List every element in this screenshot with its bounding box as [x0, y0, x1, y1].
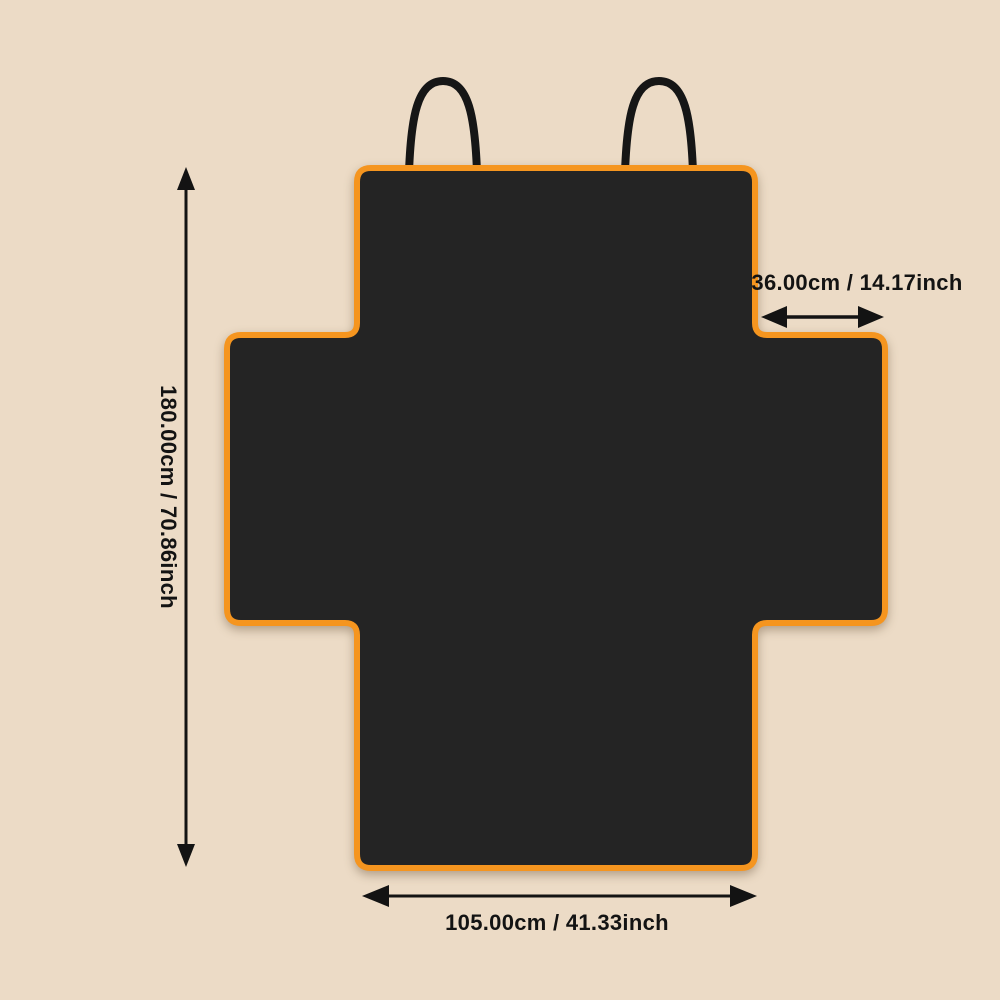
diagram-canvas: 180.00cm / 70.86inch 36.00cm / 14.17inch… [0, 0, 1000, 1000]
bottom-width-dimension-label: 105.00cm / 41.33inch [445, 910, 669, 935]
flap-width-dimension-label: 36.00cm / 14.17inch [751, 270, 962, 295]
dimension-diagram: 180.00cm / 70.86inch 36.00cm / 14.17inch… [0, 0, 1000, 1000]
height-dimension-label: 180.00cm / 70.86inch [156, 385, 181, 609]
